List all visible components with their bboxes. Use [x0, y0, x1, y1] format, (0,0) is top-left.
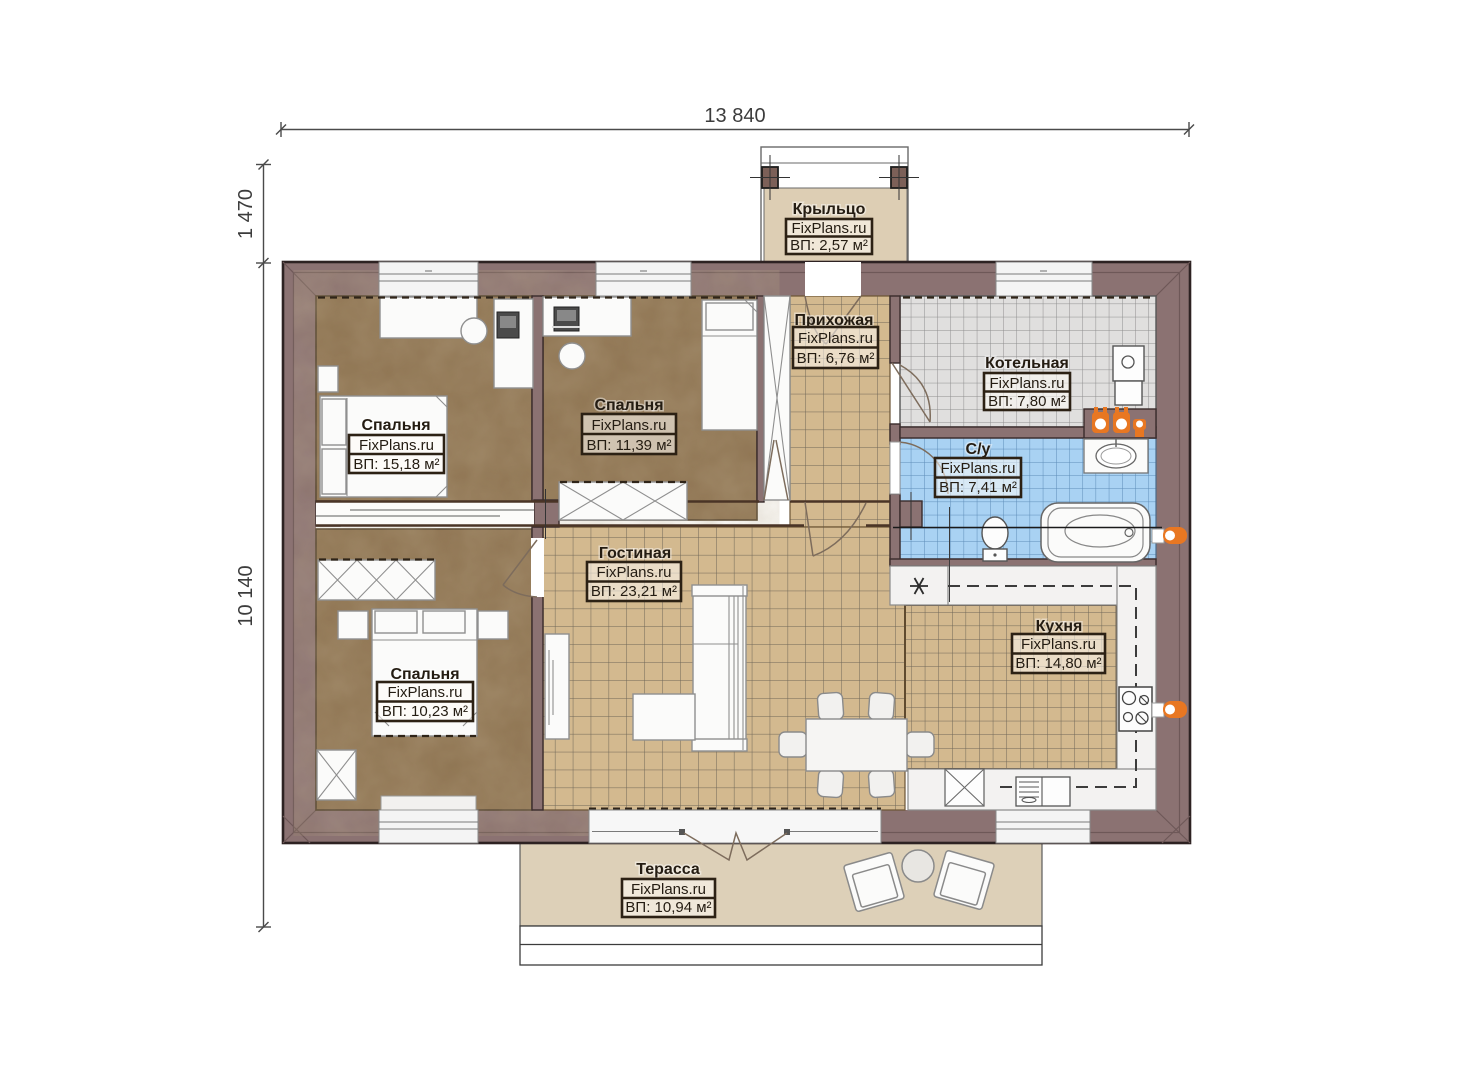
svg-text:Гостиная: Гостиная	[599, 545, 671, 562]
svg-text:ВП: 10,94 м²: ВП: 10,94 м²	[625, 899, 711, 916]
svg-text:Кухня: Кухня	[1036, 618, 1083, 635]
svg-text:ВП: 10,23 м²: ВП: 10,23 м²	[382, 703, 468, 720]
svg-text:FixPlans.ru: FixPlans.ru	[798, 330, 873, 347]
svg-text:Спальня: Спальня	[390, 666, 459, 683]
svg-text:1 470: 1 470	[235, 189, 257, 239]
svg-text:ВП: 15,18 м²: ВП: 15,18 м²	[353, 456, 439, 473]
svg-text:ВП: 11,39 м²: ВП: 11,39 м²	[586, 437, 671, 454]
svg-text:FixPlans.ru: FixPlans.ru	[359, 437, 434, 454]
svg-text:13 840: 13 840	[704, 105, 765, 127]
svg-text:ВП: 23,21 м²: ВП: 23,21 м²	[591, 583, 677, 600]
svg-text:Терасса: Терасса	[636, 861, 700, 878]
svg-text:FixPlans.ru: FixPlans.ru	[791, 220, 866, 237]
svg-text:ВП: 14,80 м²: ВП: 14,80 м²	[1015, 655, 1101, 672]
svg-text:Крыльцо: Крыльцо	[793, 201, 866, 218]
svg-text:FixPlans.ru: FixPlans.ru	[596, 564, 671, 581]
svg-text:FixPlans.ru: FixPlans.ru	[989, 375, 1064, 392]
svg-text:FixPlans.ru: FixPlans.ru	[591, 417, 666, 434]
svg-text:ВП: 2,57 м²: ВП: 2,57 м²	[790, 237, 868, 254]
svg-text:ВП: 6,76 м²: ВП: 6,76 м²	[797, 350, 875, 367]
svg-text:FixPlans.ru: FixPlans.ru	[1021, 636, 1096, 653]
svg-text:ВП: 7,80 м²: ВП: 7,80 м²	[988, 393, 1066, 410]
svg-text:Спальня: Спальня	[361, 417, 430, 434]
svg-text:Котельная: Котельная	[985, 355, 1069, 372]
svg-text:С/у: С/у	[966, 441, 991, 458]
svg-text:ВП: 7,41 м²: ВП: 7,41 м²	[939, 479, 1017, 496]
svg-text:10 140: 10 140	[235, 565, 257, 626]
svg-text:FixPlans.ru: FixPlans.ru	[387, 684, 462, 701]
svg-text:FixPlans.ru: FixPlans.ru	[940, 460, 1015, 477]
svg-text:Спальня: Спальня	[594, 397, 663, 414]
svg-text:FixPlans.ru: FixPlans.ru	[631, 881, 706, 898]
